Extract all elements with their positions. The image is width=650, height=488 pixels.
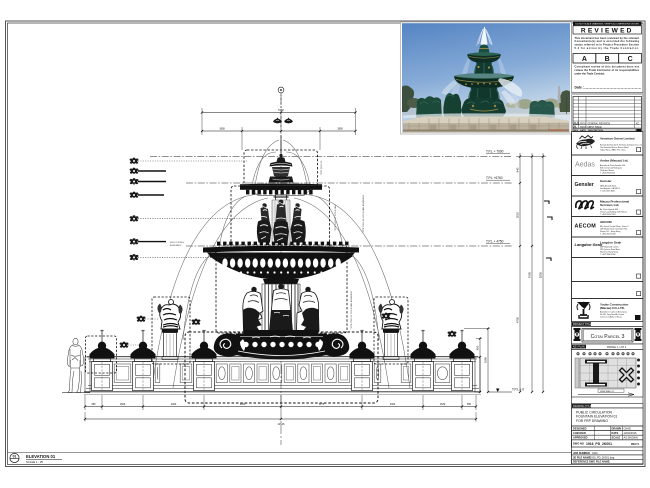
svg-text:3D FILE NAME:: 3D FILE NAME:	[573, 456, 591, 459]
svg-text:DWG NO: DWG NO	[573, 442, 584, 446]
svg-text:1858: 1858	[219, 128, 225, 131]
svg-text:AS SHOWN: AS SHOWN	[624, 436, 638, 440]
svg-text:T +852 3922 9000: T +852 3922 9000	[600, 234, 615, 236]
svg-text:DRAWN: DRAWN	[612, 426, 622, 430]
svg-text:1916_PD_2K001.dwg: 1916_PD_2K001.dwg	[590, 456, 615, 459]
svg-text:5.4 for action by the Trade Co: 5.4 for action by the Trade Contractor.	[575, 47, 640, 50]
svg-text:T +853 2833 1113: T +853 2833 1113	[600, 172, 615, 174]
svg-text:AECOM: AECOM	[600, 220, 612, 224]
svg-text:5858 Avenida Real,: 5858 Avenida Real,	[600, 185, 617, 188]
svg-text:01: 01	[13, 454, 17, 458]
svg-text:PROJECT TITLE: PROJECT TITLE	[573, 323, 592, 326]
svg-text:CHAD: CHAD	[624, 426, 631, 430]
svg-text:C: C	[628, 56, 633, 63]
svg-text:© PARISINFO.FR: © PARISINFO.FR	[548, 128, 569, 132]
svg-text:KEY PLAN: KEY PLAN	[573, 346, 585, 349]
svg-text:TYPE 'FRG-02' FOUNTAIN ASSEMBL: TYPE 'FRG-02' FOUNTAIN ASSEMBLY	[350, 290, 353, 329]
svg-text:2400: 2400	[390, 403, 396, 406]
svg-text:TYPE 'FRG-03' FOUNTAIN: TYPE 'FRG-03' FOUNTAIN	[334, 204, 337, 231]
svg-text:A: A	[582, 56, 587, 63]
svg-text:T.P.L + 7600: T.P.L + 7600	[486, 150, 504, 154]
svg-text:VENETIAN LOT: VENETIAN LOT	[600, 390, 615, 393]
svg-text:9250: 9250	[539, 271, 543, 278]
svg-text:DATE: DATE	[612, 431, 619, 435]
svg-text:Consultant review of this docu: Consultant review of this document does …	[575, 66, 640, 69]
svg-text:T 1.213.327.3600: T 1.213.327.3600	[600, 191, 615, 193]
svg-text:TYPE 'FRG-04' FOUNTAIN ASSEMBL: TYPE 'FRG-04' FOUNTAIN ASSEMBLY	[362, 194, 365, 233]
svg-text:1916_PD_2K001: 1916_PD_2K001	[586, 442, 612, 446]
svg-text:CHECKED: CHECKED	[573, 431, 586, 435]
svg-text:GENERAL REVISION: GENERAL REVISION	[588, 123, 611, 126]
svg-text:1530: 1530	[440, 403, 446, 406]
svg-text:FRG COPING: FRG COPING	[170, 242, 184, 244]
svg-text:2400: 2400	[171, 403, 177, 406]
svg-text:-: -	[598, 432, 599, 435]
svg-text:SCALE 1 : 25: SCALE 1 : 25	[26, 460, 43, 464]
svg-text:3103: 3103	[592, 452, 598, 455]
svg-text:Aedas: Aedas	[575, 162, 595, 169]
svg-text:JOB NUMBER: JOB NUMBER	[573, 452, 590, 455]
svg-text:DESIGNED: DESIGNED	[573, 426, 587, 430]
svg-text:12/04/2016: 12/04/2016	[624, 431, 638, 435]
svg-text:TYPE 'FRG-05': TYPE 'FRG-05'	[321, 160, 323, 176]
svg-text:Los Angeles, CA 90071: Los Angeles, CA 90071	[600, 187, 620, 190]
svg-text:Date :: Date :	[575, 86, 584, 90]
svg-text:Estrada da Baia de N. Senhora: Estrada da Baia de N. Senhora da Esperan…	[600, 144, 642, 147]
svg-text:2010: 2010	[516, 211, 520, 218]
svg-text:KC: KC	[636, 124, 640, 126]
svg-text:REVIEWED: REVIEWED	[581, 27, 634, 34]
svg-text:FOR FRP DRAWING: FOR FRP DRAWING	[576, 419, 608, 423]
svg-text:T.P.L ± 0: T.P.L ± 0	[512, 388, 524, 392]
svg-text:B: B	[605, 56, 610, 63]
svg-text:Langdon·Seah: Langdon·Seah	[575, 242, 603, 247]
svg-text:Gensler: Gensler	[575, 182, 594, 188]
svg-text:ELEVATION 01: ELEVATION 01	[26, 454, 56, 459]
svg-text:REV 0: REV 0	[631, 442, 640, 446]
svg-text:Aedas (Macau) Ltd.: Aedas (Macau) Ltd.	[600, 159, 629, 163]
svg-text:T.P.L + 4750: T.P.L + 4750	[486, 240, 504, 244]
svg-text:Comercio 9-Andar I, Macau: Comercio 9-Andar I, Macau	[600, 315, 622, 318]
svg-text:Langdon Seah: Langdon Seah	[600, 241, 621, 245]
svg-text:3030: 3030	[240, 403, 246, 406]
svg-text:T +852 2830 3500: T +852 2830 3500	[600, 254, 615, 256]
svg-text:940: 940	[516, 167, 520, 172]
svg-text:relieve the Trade Contracto: relieve the Trade Contractor of its resp…	[575, 69, 640, 72]
svg-text:665: 665	[92, 403, 97, 406]
svg-text:DO NOT SCALE DRAWINGS. VERIFY: DO NOT SCALE DRAWINGS. VERIFY ALL DIMENS…	[576, 23, 640, 26]
svg-text:DRAWING TITLE: DRAWING TITLE	[573, 405, 592, 408]
svg-text:ASSEMBLY: ASSEMBLY	[170, 244, 182, 247]
svg-text:Venetian Orient Limited: Venetian Orient Limited	[600, 137, 635, 141]
svg-text:(Macau) CO.,LTD.: (Macau) CO.,LTD.	[600, 306, 625, 310]
svg-text:T +853 2878 7333: T +853 2878 7333	[600, 214, 615, 216]
svg-text:4750: 4750	[516, 316, 520, 323]
svg-text:APPROVED: APPROVED	[573, 436, 588, 440]
svg-text:05/16: 05/16	[580, 124, 586, 126]
svg-text:-: -	[598, 437, 599, 440]
svg-text:5782: 5782	[278, 108, 284, 112]
svg-text:Taipa, Macau SAR, P.R. China: Taipa, Macau SAR, P.R. China	[600, 149, 627, 152]
svg-text:Services Ltd.: Services Ltd.	[600, 203, 619, 207]
svg-text:1605: 1605	[120, 403, 126, 406]
svg-text:11616: 11616	[277, 422, 285, 426]
svg-text:3175: 3175	[319, 403, 325, 406]
svg-text:Gensler: Gensler	[600, 179, 612, 183]
svg-text:AECOM: AECOM	[575, 224, 597, 230]
svg-text:7600: 7600	[528, 271, 532, 278]
svg-text:450: 450	[476, 345, 480, 350]
svg-text:REFERENCE DWG FILE NAME:: REFERENCE DWG FILE NAME:	[573, 461, 610, 464]
svg-text:The Venetian Macao Resort Hote: The Venetian Macao Resort Hotel	[600, 146, 629, 149]
svg-text:SCALE: SCALE	[612, 436, 621, 440]
svg-text:1858: 1858	[337, 128, 343, 131]
svg-text:T.P.L +6760: T.P.L +6760	[486, 176, 503, 180]
svg-text:under the Trade Contract.: under the Trade Contract.	[575, 73, 606, 76]
svg-text:550: 550	[467, 403, 472, 406]
svg-text:PARCEL 1, LOT 2: PARCEL 1, LOT 2	[607, 346, 627, 349]
svg-text:1690: 1690	[484, 357, 488, 363]
